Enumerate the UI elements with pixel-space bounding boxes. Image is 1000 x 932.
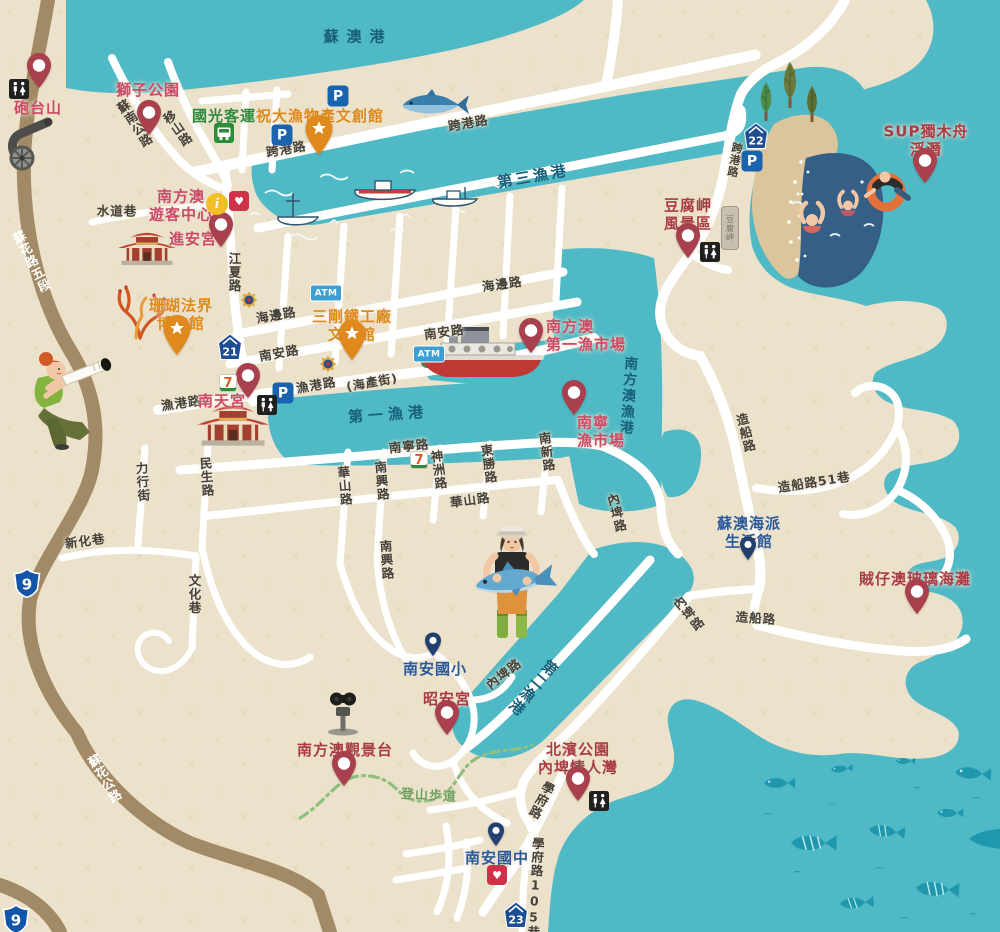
sup-kayak-pin[interactable] [912,147,939,188]
poi-label-line: 砲台山 [14,100,62,118]
svg-text:23: 23 [508,914,523,927]
water-label: 蘇澳港 [323,26,392,47]
suao-lifestyle-hall-pin[interactable] [739,536,757,565]
doufu-cape-pin[interactable] [675,222,702,263]
road-label: 登山步道 [401,783,458,805]
visitor-info-icon: i [206,193,228,215]
poi-label-line: 遊客中心 [149,206,213,224]
paotai-mountain-label[interactable]: 砲台山 [14,100,62,118]
poi-label-line: 豆腐岬 [664,197,712,215]
nanning-fish-market-pin[interactable] [561,379,588,420]
seven-eleven-icon: 7 [410,451,428,469]
bus-icon [214,123,234,143]
jinan-temple-pin[interactable] [208,211,235,252]
police-badge-icon [241,291,258,310]
parking-icon: P [272,125,293,146]
provincial-highway-9-shield: 9 [13,568,41,598]
road-label: 造船路 [735,606,777,628]
coral-museum-pin[interactable] [162,314,192,360]
first-fish-market-pin[interactable] [518,317,545,358]
toilet-icon [257,395,277,415]
visitor-center-label[interactable]: 南方澳遊客中心 [149,188,213,223]
atm-icon: ATM [310,285,342,302]
toilet-icon [9,79,29,99]
poi-label-line: 獅子公園 [116,82,180,100]
poi-label-line: 漁市場 [577,432,625,450]
zhudayu-museum-pin[interactable] [304,114,334,160]
nanfangao-tourist-map: 蘇澳港第三漁港第一漁港南方澳漁港第二漁港蘇南公路移山路水道巷跨港路跨港路跨港路江… [0,0,1000,932]
beibin-park-pin[interactable] [565,765,592,806]
svg-text:9: 9 [11,912,21,930]
zhaoan-temple-pin[interactable] [434,699,461,740]
police-badge-icon [320,355,337,374]
county-route-23-shield: 23 [504,902,528,929]
poi-label-line: 第一漁市場 [546,336,626,354]
poi-label-line: 蘇澳海派 [717,515,781,533]
county-route-21-shield: 21 [218,334,242,361]
road-label: 南興路 [375,539,397,581]
doufu-cape-monument: 豆腐岬 [721,206,739,250]
aed-icon: ♥ [487,865,507,885]
road-label: 江夏路 [225,252,244,293]
seven-eleven-icon: 7 [219,374,237,392]
road-label: 水道巷 [97,201,138,220]
nanan-elementary-pin[interactable] [424,632,442,661]
lion-park-pin[interactable] [136,99,163,140]
glass-beach-pin[interactable] [904,578,931,619]
provincial-highway-9-shield: 9 [2,904,30,932]
poi-label-line: 南方澳 [546,318,626,336]
toilet-icon [589,791,609,811]
poi-label-line: 南方澳 [149,188,213,206]
nanan-junior-high-pin[interactable] [487,822,505,851]
road-label: 華山路 [333,465,355,507]
road-label: 南興路 [370,460,392,502]
road-label: 文化巷 [185,574,204,615]
nanan-elementary-label[interactable]: 南安國小 [403,661,467,679]
parking-icon: P [742,151,763,172]
poi-label-line: 北濱公園 [538,741,618,759]
aed-icon: ♥ [229,191,249,211]
road-label: 力行街 [131,461,153,503]
sangang-ironworks-pin[interactable] [337,319,367,365]
atm-icon: ATM [413,346,445,363]
svg-text:9: 9 [22,576,32,594]
toilet-icon [700,242,720,262]
poi-label-line: SUP獨木舟 [884,123,969,141]
svg-text:21: 21 [222,346,237,359]
paotai-mountain-pin[interactable] [26,52,53,93]
county-route-22-shield: 22 [744,123,768,150]
parking-icon: P [328,86,349,107]
lion-park-label[interactable]: 獅子公園 [116,82,180,100]
poi-label-line: 珊瑚法界 [149,297,213,315]
road-label: 民生路 [195,456,217,498]
svg-text:22: 22 [748,135,763,148]
poi-label-line: 南安國小 [403,661,467,679]
observation-deck-pin[interactable] [331,750,358,791]
first-fish-market-label[interactable]: 南方澳第一漁市場 [546,318,626,353]
